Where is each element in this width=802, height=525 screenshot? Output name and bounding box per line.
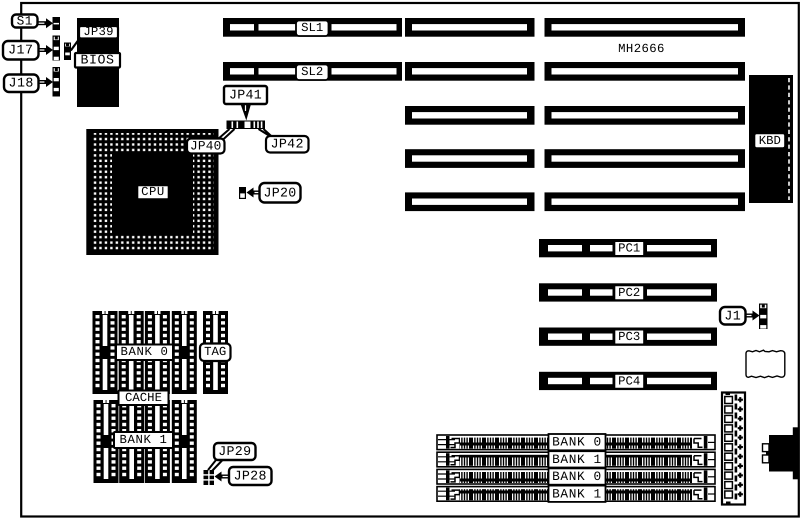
svg-text:BANK 1: BANK 1 [552, 486, 602, 501]
svg-text:JP40: JP40 [190, 139, 222, 154]
svg-text:KBD: KBD [759, 134, 781, 148]
svg-text:J17: J17 [8, 43, 33, 58]
svg-text:MH2666: MH2666 [618, 42, 665, 56]
svg-text:J1: J1 [724, 308, 741, 323]
svg-text:CACHE: CACHE [125, 391, 162, 405]
svg-text:JP28: JP28 [234, 469, 267, 484]
svg-text:BANK 0: BANK 0 [552, 469, 602, 484]
svg-text:SL2: SL2 [301, 65, 323, 79]
svg-text:PC1: PC1 [618, 242, 640, 256]
svg-text:J18: J18 [8, 76, 33, 91]
svg-text:JP41: JP41 [229, 88, 262, 103]
svg-text:BANK 1: BANK 1 [120, 433, 168, 447]
svg-text:S1: S1 [17, 14, 33, 29]
svg-text:BANK 0: BANK 0 [552, 435, 602, 450]
svg-text:SL1: SL1 [301, 21, 323, 35]
svg-text:PC3: PC3 [618, 330, 640, 344]
svg-text:JP39: JP39 [83, 25, 113, 39]
svg-text:JP29: JP29 [218, 444, 251, 459]
svg-text:PC2: PC2 [618, 286, 640, 300]
svg-text:BANK 0: BANK 0 [121, 345, 169, 359]
svg-text:TAG: TAG [204, 345, 226, 359]
svg-text:CPU: CPU [141, 185, 165, 199]
svg-text:PC4: PC4 [618, 374, 640, 388]
svg-text:JP20: JP20 [263, 185, 296, 200]
svg-text:BANK 1: BANK 1 [552, 452, 602, 467]
svg-text:JP42: JP42 [271, 137, 304, 152]
svg-text:BIOS: BIOS [81, 53, 115, 68]
